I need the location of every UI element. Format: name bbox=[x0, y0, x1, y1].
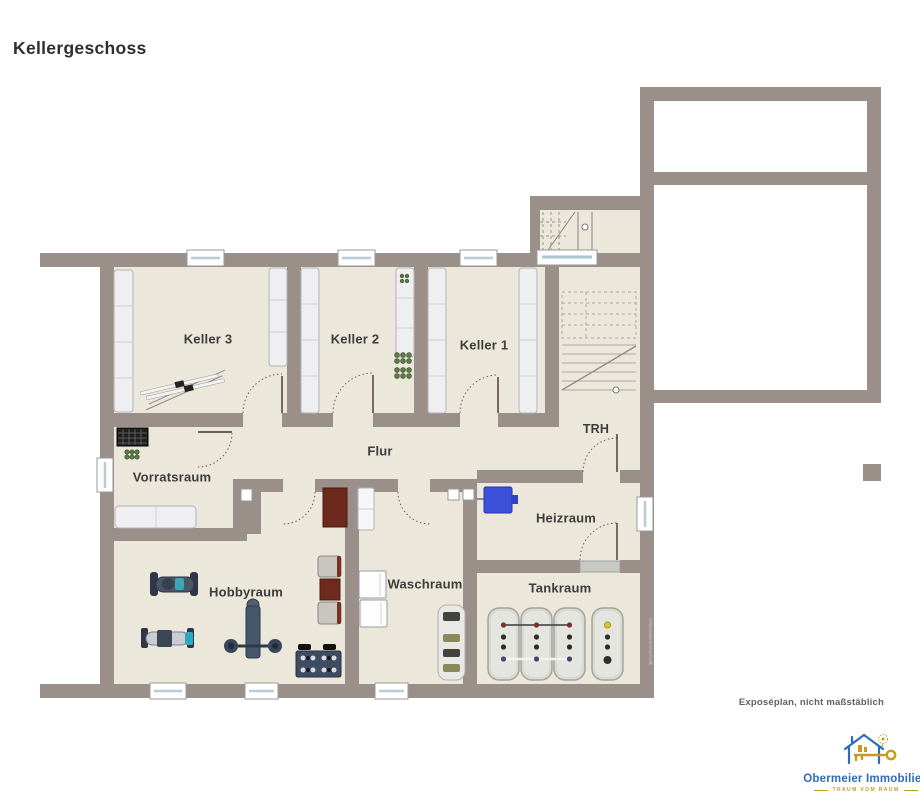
room-label-keller3: Keller 3 bbox=[184, 332, 233, 347]
crate-shelf-icon bbox=[117, 428, 148, 446]
room-label-trh: TRH bbox=[583, 422, 609, 436]
room-label-waschraum: Waschraum bbox=[387, 577, 462, 592]
room-label-vorratsraum: Vorratsraum bbox=[133, 470, 212, 485]
company-logo: Obermeier Immobilien TRAUM VOM RAUM bbox=[796, 731, 920, 793]
logo-house-key-icon bbox=[831, 731, 901, 767]
logo-tagline: TRAUM VOM RAUM bbox=[796, 787, 920, 793]
logo-company-name: Obermeier Immobilien bbox=[796, 773, 920, 785]
entrance-door bbox=[537, 250, 597, 265]
open-door-leaf bbox=[323, 488, 347, 527]
watermark-text: ©IllustrationImmoGrafik bbox=[648, 618, 654, 666]
disclaimer-text: Exposéplan, nicht maßstäblich bbox=[739, 697, 884, 708]
room-label-heizraum: Heizraum bbox=[536, 511, 596, 526]
tagline-dash-left bbox=[814, 790, 828, 791]
vent-grille bbox=[580, 561, 620, 572]
room-label-keller2: Keller 2 bbox=[331, 332, 380, 347]
room-label-hobbyraum: Hobbyraum bbox=[209, 585, 283, 600]
chairs-table-icon bbox=[318, 556, 341, 624]
tagline-dash-right bbox=[904, 790, 918, 791]
room-label-flur: Flur bbox=[367, 444, 392, 459]
drying-rack-icon bbox=[438, 605, 465, 680]
room-label-keller1: Keller 1 bbox=[460, 338, 509, 353]
oil-tanks-icon bbox=[488, 608, 623, 680]
room-label-tankraum: Tankraum bbox=[529, 581, 592, 596]
floorplan-page: Kellergeschoss bbox=[0, 0, 920, 795]
floorplan-drawing: ©IllustrationImmoGrafik bbox=[0, 0, 920, 795]
logo-tagline-text: TRAUM VOM RAUM bbox=[833, 787, 900, 793]
